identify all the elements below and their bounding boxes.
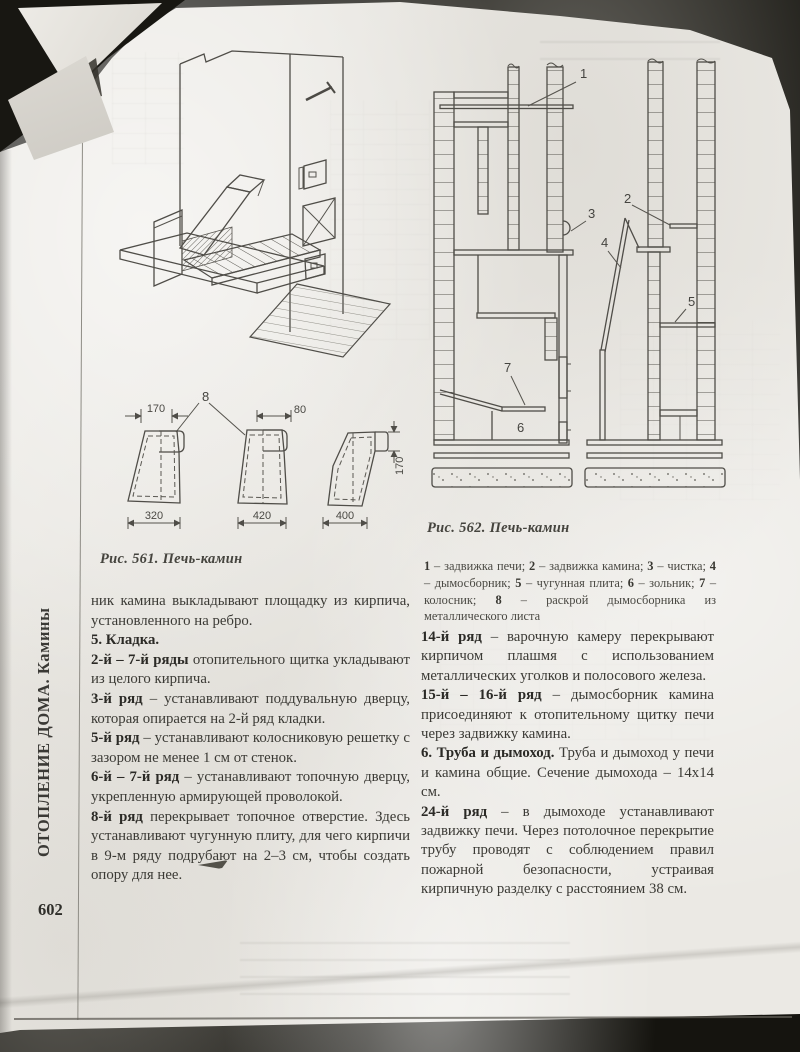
figure-562-legend: 1 – задвижка печи; 2 – задвижка камина; … xyxy=(424,558,716,624)
paragraph: 14-й ряд – варочную камеру перекрывают к… xyxy=(421,628,714,686)
callout-1: 1 xyxy=(580,66,587,81)
right-column: 14-й ряд – варочную камеру перекрывают к… xyxy=(421,628,714,900)
figure-561-drawing xyxy=(92,16,434,384)
callout-6: 6 xyxy=(517,420,524,435)
floor-panel xyxy=(250,284,390,357)
stove-section xyxy=(432,63,573,487)
paragraph: 2-й – 7-й ряды отопительного щитка уклад… xyxy=(91,651,410,690)
fireplace-section xyxy=(585,59,725,487)
dim-170-side: 170 xyxy=(394,457,406,475)
page-left-edge-shadow xyxy=(0,150,12,1035)
dim-170-top: 170 xyxy=(147,403,165,415)
left-column: ник камина выкладывают площадку из кирпи… xyxy=(91,592,410,886)
figure-562-caption: Рис. 562. Печь-камин xyxy=(427,520,569,537)
paragraph: ник камина выкладывают площадку из кирпи… xyxy=(91,592,410,631)
cleanout-door-icon xyxy=(299,160,326,189)
dim-80: 80 xyxy=(294,404,306,416)
pattern-shape-2: 80 420 xyxy=(238,404,306,529)
paragraph: 15-й – 16-й ряд – дымосборник камина при… xyxy=(421,686,714,744)
figure-561-caption: Рис. 561. Печь-камин xyxy=(100,551,242,568)
scanned-page: { "page": { "margin_title": "ОТОПЛЕНИЕ Д… xyxy=(0,0,800,1052)
pattern-shape-1: 170 320 xyxy=(125,403,188,529)
figure-561-patterns: 8 170 320 80 420 400 170 xyxy=(95,383,435,535)
cleanout-bump xyxy=(563,221,570,235)
callout-7: 7 xyxy=(504,360,511,375)
pattern-shape-3: 400 170 xyxy=(323,421,406,529)
damper-box-icon xyxy=(303,198,335,246)
callout-5: 5 xyxy=(688,294,695,309)
callout-4: 4 xyxy=(601,235,608,250)
callout-2: 2 xyxy=(624,191,631,206)
paragraph: 3-й ряд – устанавливают поддувальную две… xyxy=(91,690,410,729)
damper-handle-icon xyxy=(306,82,335,100)
paragraph: 6-й – 7-й ряд – устанавливают топочную д… xyxy=(91,768,410,807)
margin-title: ОТОПЛЕНИЕ ДОМА. Камины xyxy=(26,556,62,908)
paragraph: 24-й ряд – в дымоходе устанавливают задв… xyxy=(421,803,714,900)
dim-400: 400 xyxy=(336,510,354,522)
page-number: 602 xyxy=(38,900,63,920)
paragraph: 5-й ряд – устанавливают колосниковую реш… xyxy=(91,729,410,768)
callout-8: 8 xyxy=(202,389,209,404)
paragraph: 6. Труба и дымоход. Труба и дымоход у пе… xyxy=(421,744,714,802)
callout-3: 3 xyxy=(588,206,595,221)
paragraph: 8-й ряд перекрывает топочное отверстие. … xyxy=(91,808,410,886)
figure-562-drawing: 1 2 3 4 5 6 7 xyxy=(430,42,730,494)
firebox-doors xyxy=(559,357,571,443)
paragraph: 5. Кладка. xyxy=(91,631,410,651)
dim-420: 420 xyxy=(253,510,271,522)
dim-320: 320 xyxy=(145,510,163,522)
